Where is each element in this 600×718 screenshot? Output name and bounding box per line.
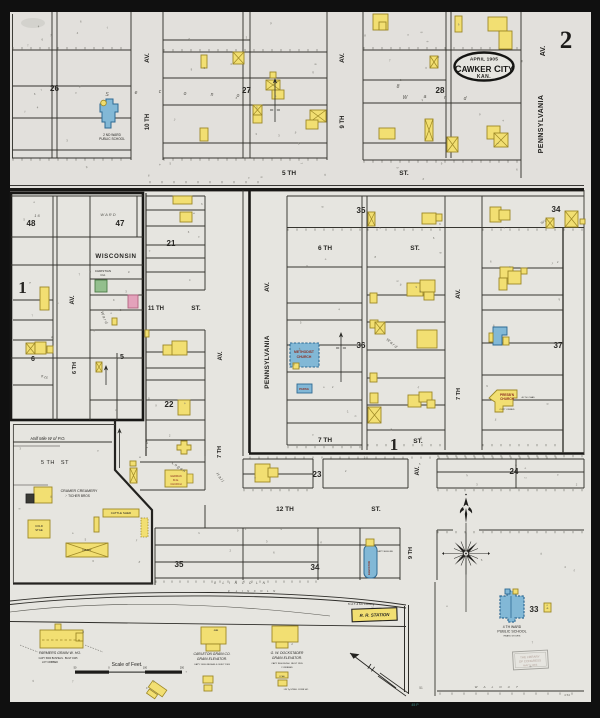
svg-text:PARSG: PARSG	[299, 387, 309, 391]
svg-text:ST.: ST.	[399, 170, 409, 177]
svg-text:CATTLE SHED: CATTLE SHED	[111, 511, 132, 515]
svg-text:22: 22	[165, 400, 174, 409]
svg-text:R. R. STATION: R. R. STATION	[359, 612, 390, 618]
svg-text:5 TH: 5 TH	[282, 170, 296, 177]
svg-text:1 6: 1 6	[34, 213, 40, 218]
svg-text:34: 34	[552, 205, 561, 214]
svg-text:HEATD STOVES: HEATD STOVES	[504, 635, 521, 638]
svg-text:AV.: AV.	[455, 289, 462, 299]
svg-text:AV.: AV.	[339, 53, 346, 63]
svg-text:4 54: 4 54	[564, 693, 570, 697]
svg-text:ST.: ST.	[371, 506, 381, 513]
svg-text:48: 48	[27, 219, 36, 228]
svg-text:CHURCH: CHURCH	[500, 397, 515, 401]
svg-text:1: 1	[18, 278, 27, 297]
svg-text:34: 34	[311, 563, 320, 572]
svg-text:35: 35	[357, 206, 366, 215]
svg-text:33: 33	[530, 605, 539, 614]
svg-text:6: 6	[31, 356, 35, 363]
svg-text:oats: oats	[214, 629, 219, 632]
svg-text:9 TH: 9 TH	[340, 115, 346, 128]
svg-text:AV.: AV.	[540, 46, 547, 57]
svg-text:21: 21	[167, 239, 176, 248]
svg-text:7 TH: 7 TH	[144, 440, 149, 449]
svg-text:36: 36	[357, 341, 366, 350]
svg-text:PENNSYLVANIA: PENNSYLVANIA	[538, 95, 545, 154]
svg-text:6 TH: 6 TH	[72, 362, 78, 374]
svg-text:PUBLIC SCHOOL: PUBLIC SCHOOL	[497, 630, 526, 634]
svg-text:2 CRIBBED: 2 CRIBBED	[281, 667, 293, 669]
svg-text:AV.: AV.	[415, 466, 421, 475]
svg-text:CH.: CH.	[100, 273, 105, 277]
svg-text:100: 100	[143, 667, 148, 670]
svg-text:W A R D: W A R D	[100, 212, 115, 217]
svg-text:GRAIN ELEVATOR.: GRAIN ELEVATOR.	[197, 657, 227, 661]
svg-text:STGE: STGE	[35, 528, 43, 532]
svg-text:24: 24	[510, 467, 519, 476]
svg-text:7 TH: 7 TH	[456, 388, 462, 400]
svg-text:8: 8	[397, 84, 400, 90]
svg-text:7 TH: 7 TH	[217, 446, 223, 458]
svg-text:AV.: AV.	[264, 282, 271, 292]
svg-text:AV.: AV.	[218, 351, 224, 360]
svg-text:AV.: AV.	[144, 53, 151, 63]
svg-text:2: 2	[560, 27, 573, 54]
svg-text:W A L N U T: W A L N U T	[475, 685, 520, 689]
svg-text:GRAIN ELEVATOR.: GRAIN ELEVATOR.	[272, 656, 302, 660]
svg-text:APRIL 1905: APRIL 1905	[470, 57, 498, 63]
svg-text:5: 5	[120, 354, 124, 361]
svg-text:37: 37	[554, 341, 563, 350]
svg-text:KAN.: KAN.	[477, 74, 491, 80]
svg-text:CHURCH: CHURCH	[170, 482, 181, 486]
svg-text:CAPT 30000 BU: CAPT 30000 BU	[377, 550, 394, 553]
svg-text:PUBLIC SCHOOL: PUBLIC SCHOOL	[99, 137, 125, 141]
svg-text:ST.: ST.	[410, 245, 420, 252]
svg-text:10 TH: 10 TH	[145, 114, 151, 130]
svg-text:CHURCH: CHURCH	[297, 355, 312, 359]
svg-text:40 TH. CHAS: 40 TH. CHAS	[521, 396, 535, 399]
svg-text:ELEVATOR: ELEVATOR	[367, 561, 371, 575]
svg-text:e: e	[135, 90, 138, 96]
svg-text:AV.: AV.	[70, 295, 76, 304]
svg-text:47: 47	[116, 219, 125, 228]
svg-text:Half Mile W of P.O.: Half Mile W of P.O.	[30, 436, 65, 441]
svg-text:6 TH: 6 TH	[318, 245, 332, 252]
svg-text:CAPY 5000 BUSHELS. BUILT 1905: CAPY 5000 BUSHELS. BUILT 1905	[39, 657, 78, 660]
svg-text:METHODIST: METHODIST	[294, 350, 315, 354]
svg-text:12 TH: 12 TH	[276, 506, 294, 513]
svg-text:5 TH ST: 5 TH ST	[41, 460, 69, 466]
svg-text:CAPY 9000 BUSH. BUILT 1905: CAPY 9000 BUSH. BUILT 1905	[271, 662, 303, 665]
svg-text:28: 28	[436, 86, 445, 95]
svg-text:PENNSYLVANIA: PENNSYLVANIA	[264, 335, 271, 389]
svg-text:DAIRY: DAIRY	[82, 548, 91, 552]
svg-text:COAL: COAL	[279, 675, 286, 678]
svg-text:LW Ty STEEL CORR HO: LW Ty STEEL CORR HO	[284, 689, 309, 691]
svg-text:9 L I N C O L N: 9 L I N C O L N	[228, 589, 276, 593]
svg-text:CARLETON GRAIN CO.: CARLETON GRAIN CO.	[193, 652, 230, 656]
svg-text:26: 26	[50, 84, 59, 93]
svg-text:Scale of Feet.: Scale of Feet.	[112, 662, 143, 668]
svg-text:ST.: ST.	[191, 305, 201, 312]
svg-text:4 TH WARD: 4 TH WARD	[503, 625, 522, 629]
svg-text:LOT CRIBBED: LOT CRIBBED	[42, 661, 58, 664]
svg-text:9 TH: 9 TH	[408, 547, 414, 559]
svg-text:COPT OWNED: COPT OWNED	[499, 409, 514, 411]
svg-text:8 L I N C O L N: 8 L I N C O L N	[214, 581, 266, 585]
svg-text:CAPY 11000 BUSHELS. BUILT 1905: CAPY 11000 BUSHELS. BUILT 1905	[194, 663, 231, 666]
svg-text:n: n	[211, 92, 214, 98]
svg-text:TICHER BROS: TICHER BROS	[68, 494, 90, 498]
svg-text:G. W. DOCKSTADER: G. W. DOCKSTADER	[271, 651, 304, 655]
svg-text:200: 200	[180, 667, 185, 670]
svg-text:CRAMER CREAMERY: CRAMER CREAMERY	[61, 489, 98, 493]
svg-text:M.E.: M.E.	[173, 478, 179, 482]
svg-text:FARMERS GRAIN W. HO.: FARMERS GRAIN W. HO.	[39, 651, 81, 655]
svg-text:11 TH: 11 TH	[148, 306, 164, 312]
svg-text:27: 27	[242, 86, 251, 95]
svg-text:1: 1	[390, 435, 399, 454]
svg-text:d: d	[464, 96, 467, 102]
svg-text:WISCONSIN: WISCONSIN	[95, 253, 136, 260]
svg-text:7 TH: 7 TH	[318, 437, 332, 444]
svg-text:23: 23	[313, 470, 322, 479]
svg-text:51: 51	[419, 686, 423, 690]
svg-text:45 P: 45 P	[411, 703, 419, 707]
svg-text:a: a	[424, 94, 427, 100]
svg-text:o: o	[184, 91, 187, 97]
